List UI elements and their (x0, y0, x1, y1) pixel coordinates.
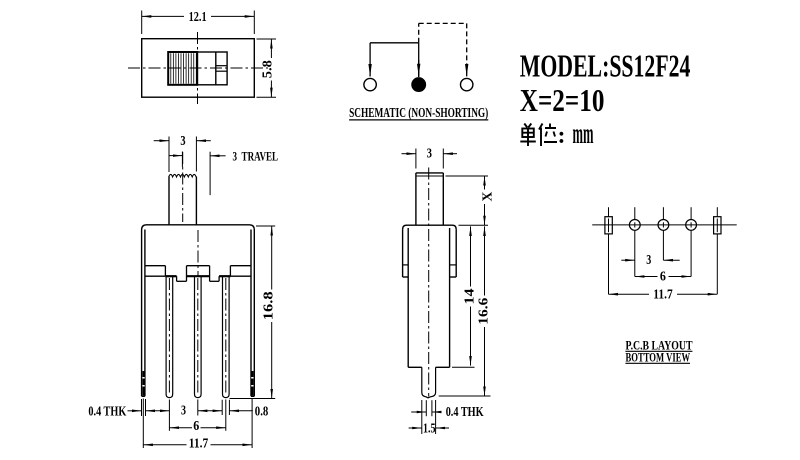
svg-text:BOTTOM VIEW: BOTTOM VIEW (626, 350, 691, 364)
svg-text:MODEL:SS12F24: MODEL:SS12F24 (520, 47, 691, 83)
svg-text:3: 3 (646, 253, 651, 268)
svg-text:0.4 THK: 0.4 THK (88, 405, 126, 420)
svg-text:0.8: 0.8 (255, 404, 268, 419)
svg-text:11.7: 11.7 (189, 436, 209, 451)
svg-text::: : (558, 123, 566, 149)
svg-text:16.6: 16.6 (477, 298, 492, 325)
svg-text:3: 3 (180, 133, 185, 148)
svg-text:X=2=10: X=2=10 (520, 82, 605, 118)
svg-text:11.7: 11.7 (653, 286, 673, 301)
svg-text:1.5: 1.5 (423, 422, 436, 437)
svg-text:12.1: 12.1 (189, 10, 207, 25)
svg-text:3: 3 (181, 404, 186, 419)
svg-text:3 TRAVEL: 3 TRAVEL (233, 149, 279, 163)
svg-text:5.8: 5.8 (260, 60, 275, 78)
svg-text:X: X (480, 191, 495, 201)
svg-text:SCHEMATIC (NON-SHORTING): SCHEMATIC (NON-SHORTING) (349, 105, 488, 120)
svg-text:mm: mm (573, 117, 594, 150)
svg-text:14: 14 (462, 289, 477, 305)
svg-text:0.4 THK: 0.4 THK (446, 405, 484, 420)
svg-text:3: 3 (427, 146, 432, 161)
svg-text:6: 6 (193, 419, 199, 434)
svg-text:6: 6 (660, 270, 666, 285)
svg-text:16.8: 16.8 (261, 291, 276, 320)
